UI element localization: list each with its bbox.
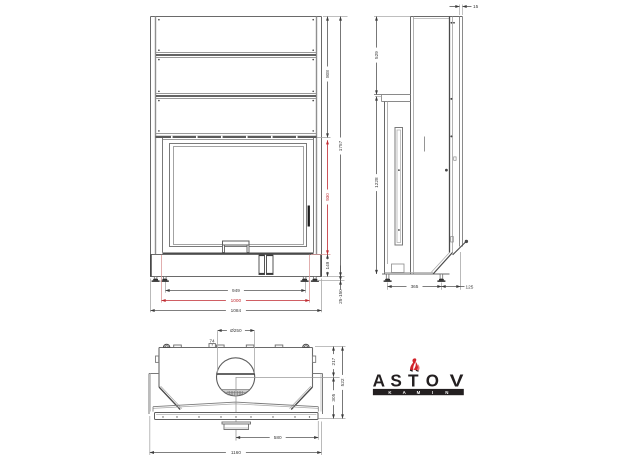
svg-text:1000: 1000	[231, 298, 242, 303]
svg-text:217: 217	[331, 357, 336, 365]
svg-text:365: 365	[411, 284, 419, 289]
svg-text:25-150: 25-150	[338, 289, 343, 304]
svg-text:125: 125	[466, 284, 474, 289]
svg-text:522: 522	[340, 378, 345, 386]
svg-text:V: V	[450, 370, 464, 390]
svg-text:N: N	[445, 390, 448, 395]
svg-text:S: S	[390, 370, 401, 390]
svg-text:I: I	[432, 390, 433, 395]
svg-text:1160: 1160	[231, 450, 241, 455]
svg-text:1757: 1757	[338, 140, 343, 151]
svg-text:15: 15	[473, 4, 479, 9]
svg-text:74: 74	[209, 339, 215, 344]
svg-text:1228: 1228	[374, 177, 379, 188]
svg-text:580: 580	[274, 435, 282, 440]
svg-text:305: 305	[331, 393, 336, 401]
svg-text:930: 930	[325, 193, 330, 201]
svg-text:1084: 1084	[231, 308, 242, 313]
svg-text:808: 808	[325, 70, 330, 78]
svg-text:A: A	[373, 370, 385, 390]
svg-text:M: M	[417, 390, 421, 395]
svg-text:T: T	[408, 370, 419, 390]
svg-text:O: O	[426, 370, 439, 390]
svg-text:Ø250: Ø250	[230, 328, 242, 333]
svg-text:529: 529	[374, 51, 379, 59]
svg-text:149: 149	[325, 261, 330, 269]
svg-text:949: 949	[232, 288, 240, 293]
